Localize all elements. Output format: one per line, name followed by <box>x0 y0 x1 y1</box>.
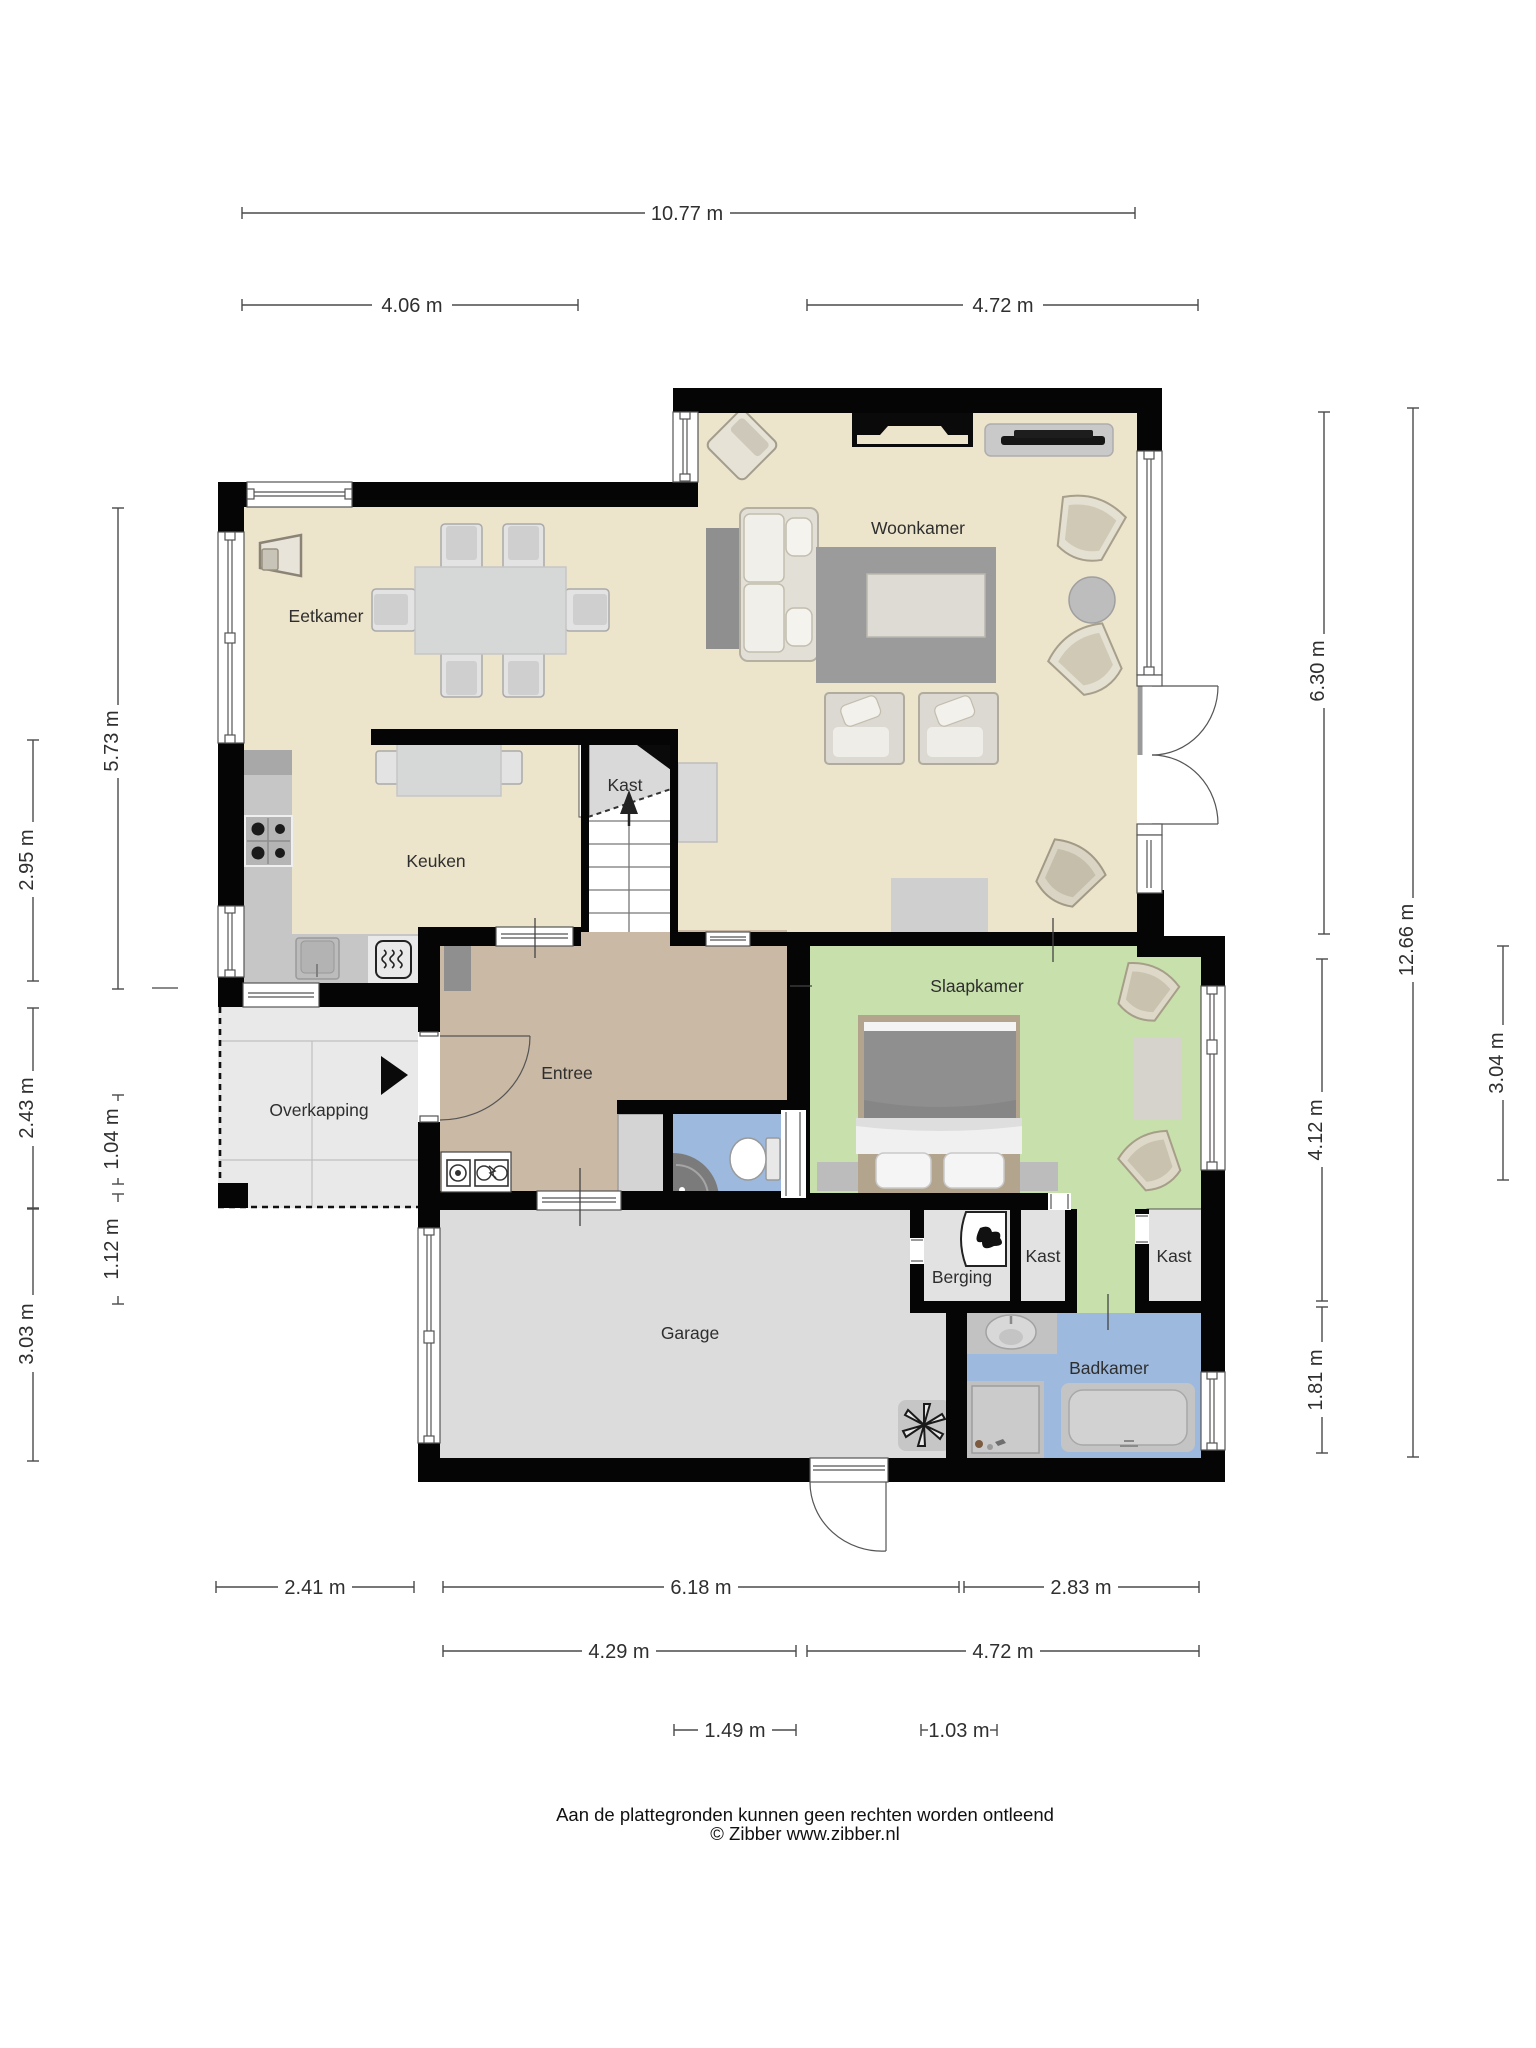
svg-text:3.03 m: 3.03 m <box>16 1303 38 1364</box>
svg-text:Woonkamer: Woonkamer <box>871 518 965 538</box>
svg-text:10.77 m: 10.77 m <box>651 203 723 225</box>
svg-text:Overkapping: Overkapping <box>269 1100 368 1120</box>
svg-text:1.49 m: 1.49 m <box>704 1720 765 1742</box>
svg-text:1.12 m: 1.12 m <box>101 1218 123 1279</box>
svg-text:5.73 m: 5.73 m <box>101 710 123 771</box>
svg-text:Garage: Garage <box>661 1323 719 1343</box>
svg-text:Slaapkamer: Slaapkamer <box>930 976 1024 996</box>
svg-text:2.95 m: 2.95 m <box>16 829 38 890</box>
svg-text:6.30 m: 6.30 m <box>1307 640 1329 701</box>
svg-text:3.04 m: 3.04 m <box>1486 1032 1508 1093</box>
svg-text:Aan de plattegronden kunnen ge: Aan de plattegronden kunnen geen rechten… <box>556 1804 1054 1825</box>
svg-text:2.43 m: 2.43 m <box>16 1077 38 1138</box>
svg-text:4.06 m: 4.06 m <box>381 295 442 317</box>
svg-text:1.03 m: 1.03 m <box>928 1720 989 1742</box>
svg-text:Entree: Entree <box>541 1063 593 1083</box>
svg-text:4.29 m: 4.29 m <box>588 1641 649 1663</box>
svg-text:4.72 m: 4.72 m <box>972 1641 1033 1663</box>
svg-text:1.04 m: 1.04 m <box>101 1108 123 1169</box>
svg-text:4.72 m: 4.72 m <box>972 295 1033 317</box>
svg-text:2.41 m: 2.41 m <box>284 1577 345 1599</box>
svg-text:6.18 m: 6.18 m <box>670 1577 731 1599</box>
svg-text:4.12 m: 4.12 m <box>1305 1099 1327 1160</box>
svg-text:12.66 m: 12.66 m <box>1396 904 1418 976</box>
svg-text:© Zibber www.zibber.nl: © Zibber www.zibber.nl <box>710 1823 899 1844</box>
svg-text:Berging: Berging <box>932 1267 992 1287</box>
svg-text:Eetkamer: Eetkamer <box>289 606 364 626</box>
svg-text:1.81 m: 1.81 m <box>1305 1349 1327 1410</box>
svg-text:2.83 m: 2.83 m <box>1050 1577 1111 1599</box>
svg-text:Kast: Kast <box>607 775 642 795</box>
svg-text:Badkamer: Badkamer <box>1069 1358 1149 1378</box>
svg-text:Kast: Kast <box>1156 1246 1191 1266</box>
svg-text:Keuken: Keuken <box>406 851 465 871</box>
svg-text:Kast: Kast <box>1025 1246 1060 1266</box>
